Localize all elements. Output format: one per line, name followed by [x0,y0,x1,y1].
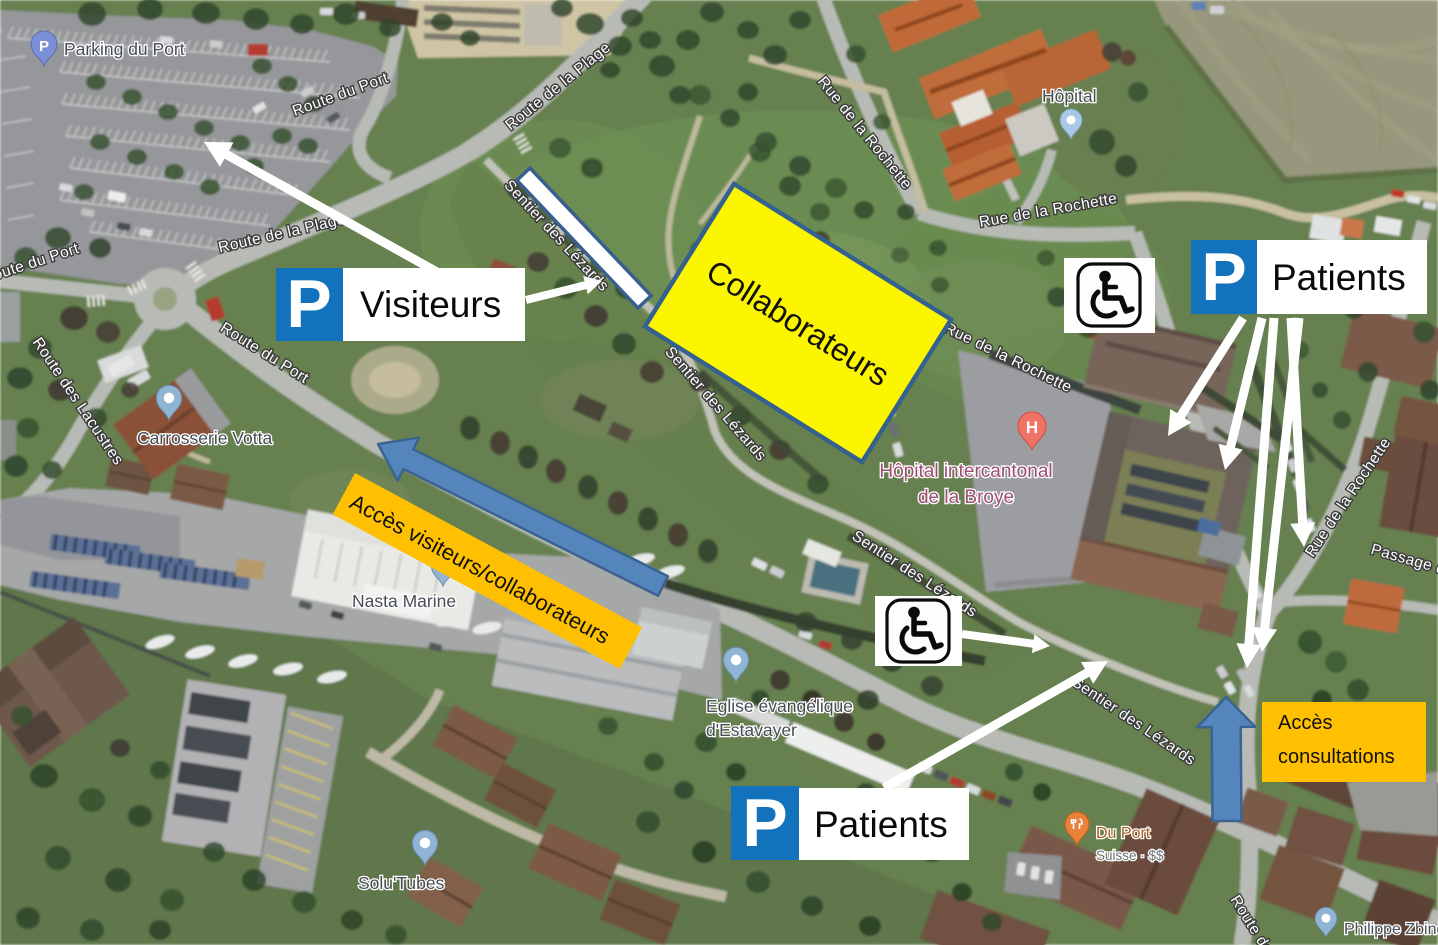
svg-text:Nasta Marine: Nasta Marine [352,591,456,611]
svg-text:Hôpital intercantonal: Hôpital intercantonal [879,461,1052,482]
svg-text:P: P [286,266,331,342]
svg-text:P: P [742,785,787,861]
svg-text:P: P [1201,239,1246,315]
svg-text:Parking du Port: Parking du Port [64,39,185,59]
svg-text:Accès: Accès [1278,712,1332,734]
svg-text:Philippe Zbinden: Philippe Zbinden [1344,921,1438,938]
svg-text:Suisse · $$: Suisse · $$ [1096,848,1164,863]
svg-text:Hôpital: Hôpital [1042,86,1096,106]
svg-text:Patients: Patients [1272,257,1406,298]
svg-text:Solu'Tubes: Solu'Tubes [358,873,445,893]
svg-text:de la Broye: de la Broye [918,487,1014,508]
svg-text:H: H [1026,418,1038,437]
svg-text:consultations: consultations [1278,746,1395,768]
svg-text:Carrosserie Votta: Carrosserie Votta [137,428,272,448]
svg-text:Visiteurs: Visiteurs [360,284,501,325]
svg-text:Eglise évangélique: Eglise évangélique [706,696,853,716]
svg-text:d'Estavayer: d'Estavayer [706,720,797,740]
svg-text:Du Port: Du Port [1096,825,1151,842]
svg-text:P: P [39,38,49,55]
svg-text:Patients: Patients [814,804,948,845]
